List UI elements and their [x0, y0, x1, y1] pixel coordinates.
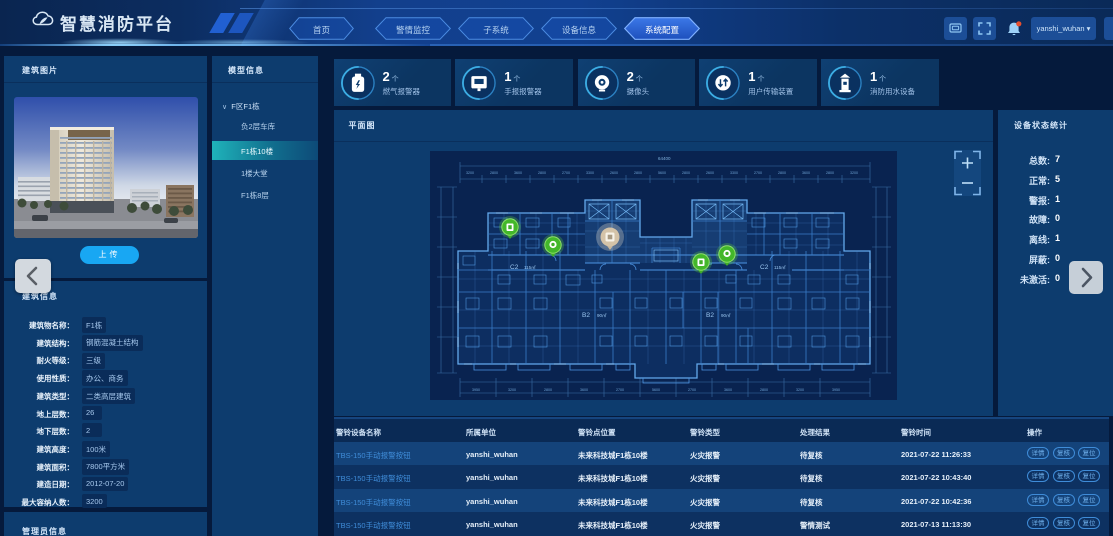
svg-text:3200: 3200: [796, 388, 804, 392]
svg-text:3200: 3200: [850, 171, 858, 175]
svg-text:3300: 3300: [730, 171, 738, 175]
svg-text:B2: B2: [706, 312, 714, 319]
svg-text:3200: 3200: [466, 171, 474, 175]
svg-text:3600: 3600: [514, 171, 522, 175]
svg-text:3300: 3300: [586, 171, 594, 175]
svg-text:3600: 3600: [802, 171, 810, 175]
svg-text:2800: 2800: [634, 171, 642, 175]
svg-text:3600: 3600: [724, 388, 732, 392]
svg-text:2700: 2700: [688, 388, 696, 392]
svg-text:3950: 3950: [832, 388, 840, 392]
svg-text:64400: 64400: [658, 156, 671, 161]
svg-text:5600: 5600: [652, 388, 660, 392]
svg-text:2800: 2800: [778, 171, 786, 175]
svg-text:3950: 3950: [472, 388, 480, 392]
svg-text:90㎡: 90㎡: [597, 312, 607, 318]
svg-text:2800: 2800: [538, 171, 546, 175]
svg-text:3200: 3200: [508, 388, 516, 392]
svg-text:3600: 3600: [580, 388, 588, 392]
svg-text:2800: 2800: [760, 388, 768, 392]
svg-text:2800: 2800: [682, 171, 690, 175]
svg-text:90㎡: 90㎡: [721, 312, 731, 318]
svg-text:C2: C2: [510, 264, 519, 271]
svg-text:2800: 2800: [490, 171, 498, 175]
svg-text:2800: 2800: [544, 388, 552, 392]
svg-text:2600: 2600: [610, 171, 618, 175]
svg-text:115㎡: 115㎡: [774, 264, 786, 270]
svg-text:115㎡: 115㎡: [524, 264, 536, 270]
svg-text:5600: 5600: [658, 171, 666, 175]
svg-text:2700: 2700: [562, 171, 570, 175]
svg-text:C2: C2: [760, 264, 769, 271]
svg-text:2700: 2700: [616, 388, 624, 392]
svg-text:2800: 2800: [826, 171, 834, 175]
svg-text:2600: 2600: [706, 171, 714, 175]
svg-text:2700: 2700: [754, 171, 762, 175]
svg-text:B2: B2: [582, 312, 590, 319]
